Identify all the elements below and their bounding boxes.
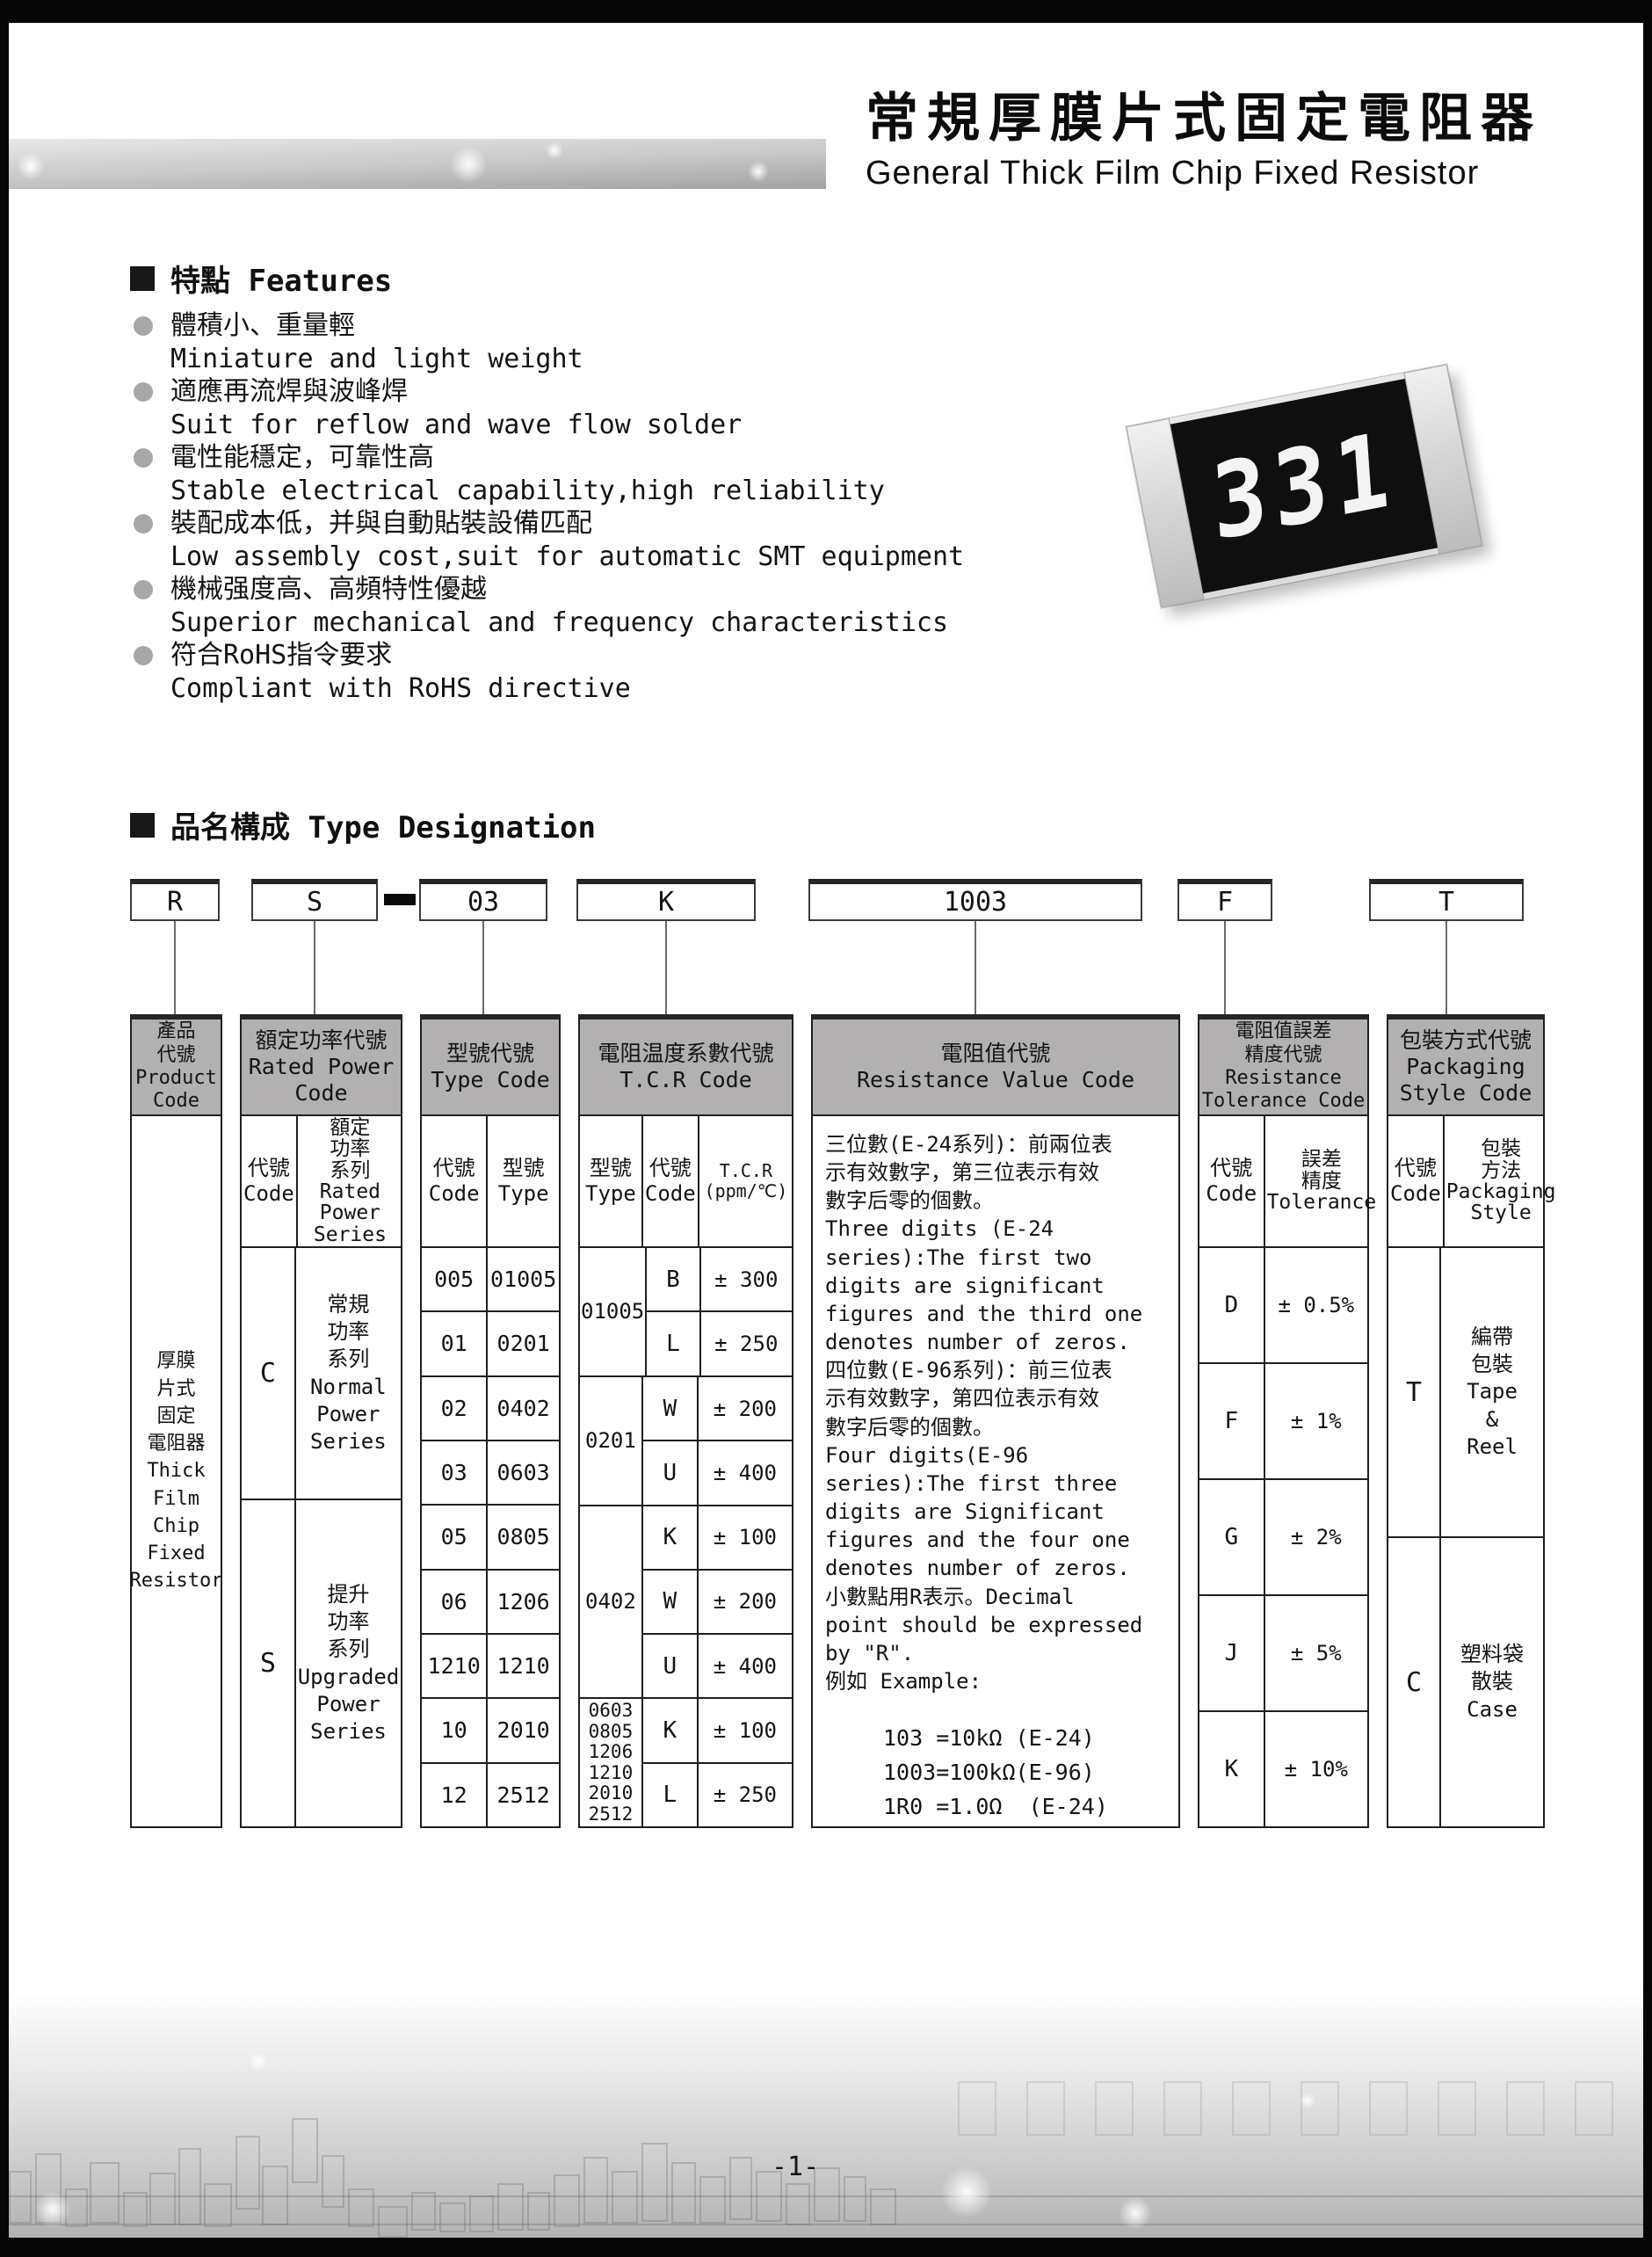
table-row: 03 0603	[422, 1441, 559, 1506]
left-black-border	[0, 0, 9, 2257]
footer-decoration	[1163, 2081, 1202, 2136]
code-box-power: S	[251, 879, 378, 921]
bullet-icon	[134, 316, 153, 336]
section-square-icon	[130, 813, 155, 838]
tcr-code-cell: L	[643, 1764, 697, 1826]
column-tcr-code: 電阻温度系數代號 T.C.R Code 型號 Type 代號 Code T.C.…	[578, 1014, 793, 1828]
designation-section-heading: 品名構成 Type Designation	[130, 803, 596, 846]
type-size-cell: 0402	[486, 1377, 559, 1440]
page-title-english: General Thick Film Chip Fixed Resistor	[866, 155, 1479, 192]
type-code-cell: 10	[422, 1699, 486, 1761]
feature-text-zh: 電性能穩定，可靠性高	[170, 441, 434, 475]
bullet-icon	[134, 382, 153, 402]
tcr-code-cell: W	[643, 1571, 697, 1633]
column-header: 包裝方式代號 Packaging Style Code	[1387, 1014, 1545, 1116]
tcr-group: 01005 B ± 300 L ± 250	[580, 1248, 792, 1377]
footer-decoration	[612, 2171, 638, 2224]
power-series-cell: 常規 功率 系列 Normal Power Series	[294, 1248, 401, 1499]
tcr-type-cell: 0402	[580, 1506, 641, 1697]
footer-decoration	[322, 2155, 344, 2208]
subheader-series: 額定 功率 系列 Rated Power Series	[296, 1116, 402, 1246]
table-row: L ± 250	[643, 1764, 792, 1826]
features-section-heading: 特點 Features	[130, 257, 392, 300]
tcr-code-cell: K	[643, 1506, 697, 1569]
feature-item: 體積小、重量輕 Miniature and light weight	[134, 309, 964, 375]
table-row: 01 0201	[422, 1312, 559, 1376]
tolerance-code-cell: F	[1199, 1364, 1264, 1478]
feature-text-en: Compliant with RoHS directive	[170, 672, 964, 705]
packaging-code-cell: C	[1388, 1538, 1439, 1826]
feature-text-en: Suit for reflow and wave flow solder	[170, 409, 964, 441]
power-code-cell: S	[242, 1500, 294, 1826]
type-size-cell: 0805	[486, 1506, 559, 1568]
table-row: 06 1206	[422, 1571, 559, 1635]
footer-decoration	[411, 2192, 436, 2231]
feature-text-zh: 體積小、重量輕	[170, 309, 355, 343]
footer-decoration	[554, 2174, 580, 2227]
bullet-icon	[134, 646, 153, 665]
tcr-value-cell: ± 400	[697, 1635, 792, 1697]
bullet-icon	[134, 448, 153, 468]
designation-heading-label: 品名構成 Type Designation	[170, 803, 596, 846]
tcr-code-cell: W	[643, 1377, 697, 1440]
type-code-cell: 06	[422, 1571, 486, 1633]
footer-decoration	[149, 2173, 176, 2225]
code-box-packaging: T	[1369, 879, 1524, 921]
product-description-cell: 厚膜 片式 固定 電阻器 Thick Film Chip Fixed Resis…	[130, 1116, 222, 1828]
footer-decoration	[348, 2188, 374, 2227]
type-size-cell: 2010	[486, 1699, 559, 1761]
tolerance-value-cell: ± 0.5%	[1264, 1248, 1367, 1362]
column-header: 額定功率代號 Rated Power Code	[240, 1014, 402, 1116]
packaging-style-cell: 塑料袋 散裝 Case	[1439, 1538, 1543, 1826]
tolerance-value-cell: ± 1%	[1264, 1364, 1367, 1478]
subheader-code: 代號 Code	[1199, 1116, 1264, 1246]
type-code-cell: 12	[422, 1764, 486, 1826]
footer-decoration	[583, 2157, 608, 2224]
table-row: K ± 10%	[1199, 1712, 1367, 1826]
footer-decoration	[844, 2176, 866, 2222]
type-size-cell: 1206	[486, 1571, 559, 1633]
type-size-cell: 0603	[486, 1441, 559, 1504]
tcr-value-cell: ± 200	[697, 1377, 792, 1440]
footer-decoration	[699, 2176, 726, 2224]
packaging-code-cell: T	[1388, 1248, 1439, 1536]
tcr-code-cell: U	[643, 1441, 697, 1504]
table-row: J ± 5%	[1199, 1596, 1367, 1712]
tcr-type-cell: 0603 0805 1206 1210 2010 2512	[580, 1699, 641, 1826]
page-title-chinese: 常規厚膜片式固定電阻器	[866, 76, 1542, 152]
feature-item: 符合RoHS指令要求 Compliant with RoHS directive	[134, 639, 964, 705]
connector-line	[1445, 921, 1447, 1014]
table-row: L ± 250	[647, 1312, 792, 1375]
code-box-tcr: K	[576, 879, 756, 921]
footer-decoration	[671, 2162, 696, 2224]
features-heading-label: 特點 Features	[170, 257, 392, 300]
footer-decoration	[469, 2195, 494, 2232]
table-row: C 塑料袋 散裝 Case	[1388, 1538, 1543, 1826]
connector-line	[665, 921, 667, 1014]
resistance-value-description: 三位數(E-24系列)：前兩位表 示有效數字，第三位表示有效 數字后零的個數。 …	[825, 1130, 1170, 1695]
type-code-cell: 03	[422, 1441, 486, 1504]
footer-decoration	[262, 2166, 288, 2225]
type-code-cell: 02	[422, 1377, 486, 1440]
footer-decoration	[1232, 2081, 1271, 2136]
tcr-code-cell: K	[643, 1699, 697, 1761]
tcr-value-cell: ± 400	[697, 1441, 792, 1504]
table-row: W ± 200	[643, 1377, 792, 1441]
tcr-code-cell: U	[643, 1635, 697, 1697]
tcr-group: 0201 W ± 200 U ± 400	[580, 1377, 792, 1506]
subheader-tcr: T.C.R (ppm/℃)	[698, 1116, 793, 1246]
sparkle-decoration	[1118, 2195, 1153, 2231]
subheader-row: 型號 Type 代號 Code T.C.R (ppm/℃)	[580, 1116, 792, 1248]
footer-decoration	[958, 2081, 996, 2136]
table-row: D ± 0.5%	[1199, 1248, 1367, 1364]
footer-decoration	[641, 2143, 668, 2222]
feature-text-en: Stable electrical capability,high reliab…	[170, 475, 964, 507]
footer-line	[9, 2224, 1643, 2225]
table-row: S 提升 功率 系列 Upgraded Power Series	[242, 1500, 401, 1826]
footer-decoration	[292, 2118, 318, 2183]
footer-decoration	[786, 2183, 810, 2225]
table-row: 05 0805	[422, 1506, 559, 1570]
footer-decoration	[1506, 2081, 1545, 2136]
table-row: F ± 1%	[1199, 1364, 1367, 1480]
type-size-cell: 2512	[486, 1764, 559, 1826]
column-header: 型號代號 Type Code	[420, 1014, 561, 1116]
type-code-cell: 01	[422, 1312, 486, 1375]
feature-text-en: Miniature and light weight	[170, 343, 964, 375]
subheader-row: 代號 Code 誤差 精度 Tolerance	[1199, 1116, 1367, 1248]
column-resistance-value: 電阻值代號 Resistance Value Code 三位數(E-24系列)：…	[811, 1014, 1180, 1828]
table-row: U ± 400	[643, 1635, 792, 1697]
table-row: U ± 400	[643, 1441, 792, 1504]
code-separator-dash	[384, 894, 416, 905]
code-box-product: R	[130, 879, 220, 921]
connector-line	[1224, 921, 1226, 1014]
table-row: B ± 300	[647, 1248, 792, 1312]
table-row: 12 2512	[422, 1764, 559, 1826]
tcr-value-cell: ± 100	[697, 1699, 792, 1761]
tcr-value-cell: ± 100	[697, 1506, 792, 1569]
resistance-value-examples: 103 =10kΩ (E-24) 1003=100kΩ(E-96) 1R0 =1…	[883, 1722, 1170, 1824]
bullet-icon	[134, 580, 153, 599]
page-number: -1-	[772, 2152, 819, 2182]
column-rated-power: 額定功率代號 Rated Power Code 代號 Code 額定 功率 系列…	[240, 1014, 402, 1828]
feature-item: 適應再流焊與波峰焊 Suit for reflow and wave flow …	[134, 375, 964, 441]
top-black-bar	[0, 0, 1652, 23]
footer-decoration	[439, 2203, 466, 2232]
feature-text-zh: 適應再流焊與波峰焊	[170, 375, 408, 409]
footer-decoration	[235, 2136, 260, 2210]
sparkle-decoration	[545, 141, 564, 160]
sparkle-decoration	[747, 160, 770, 183]
type-size-cell: 0201	[486, 1312, 559, 1375]
tolerance-value-cell: ± 5%	[1264, 1596, 1367, 1710]
tcr-code-cell: B	[647, 1248, 699, 1310]
tcr-code-cell: L	[647, 1312, 699, 1375]
feature-item: 機械强度高、高頻特性優越 Superior mechanical and fre…	[134, 573, 964, 639]
page-footer: -1-	[9, 1988, 1643, 2238]
table-row: T 編帶 包裝 Tape & Reel	[1388, 1248, 1543, 1538]
tcr-type-cell: 0201	[580, 1377, 641, 1505]
footer-decoration	[1369, 2081, 1408, 2136]
table-row: G ± 2%	[1199, 1480, 1367, 1596]
table-row: 02 0402	[422, 1377, 559, 1441]
footer-decoration	[527, 2192, 550, 2231]
tolerance-value-cell: ± 2%	[1264, 1480, 1367, 1594]
code-box-type: 03	[419, 879, 547, 921]
tcr-value-cell: ± 200	[697, 1571, 792, 1633]
column-header: 電阻温度系數代號 T.C.R Code	[578, 1014, 793, 1116]
column-packaging: 包裝方式代號 Packaging Style Code 代號 Code 包裝 方…	[1387, 1014, 1545, 1828]
sparkle-decoration	[33, 2190, 72, 2229]
bullet-icon	[134, 514, 153, 533]
subheader-code: 代號 Code	[242, 1116, 296, 1246]
tcr-value-cell: ± 250	[697, 1764, 792, 1826]
connector-line	[482, 921, 484, 1014]
footer-decoration	[378, 2206, 408, 2238]
footer-decoration	[123, 2192, 148, 2227]
table-row: K ± 100	[643, 1506, 792, 1571]
example-line: 103 =10kΩ (E-24)	[883, 1722, 1170, 1756]
bottom-black-bar	[0, 2238, 1652, 2257]
subheader-type: 型號 Type	[486, 1116, 559, 1246]
header-gray-band	[9, 139, 826, 189]
feature-text-en: Superior mechanical and frequency charac…	[170, 606, 964, 639]
footer-decoration	[870, 2188, 896, 2225]
subheader-code: 代號 Code	[1388, 1116, 1443, 1246]
connector-line	[975, 921, 976, 1014]
code-box-value: 1003	[808, 879, 1142, 921]
power-series-cell: 提升 功率 系列 Upgraded Power Series	[294, 1500, 402, 1826]
tolerance-code-cell: J	[1199, 1596, 1264, 1710]
subheader-tolerance: 誤差 精度 Tolerance	[1264, 1116, 1379, 1246]
table-row: 1210 1210	[422, 1635, 559, 1699]
example-line: 1R0 =1.0Ω (E-24)	[883, 1790, 1170, 1825]
footer-decoration	[90, 2162, 120, 2224]
section-square-icon	[130, 266, 155, 291]
footer-decoration	[9, 2171, 32, 2224]
right-black-border	[1643, 0, 1652, 2257]
tolerance-code-cell: D	[1199, 1248, 1264, 1362]
code-box-tolerance: F	[1177, 879, 1272, 921]
table-row: 10 2010	[422, 1699, 559, 1763]
type-size-cell: 01005	[486, 1248, 559, 1310]
tolerance-value-cell: ± 10%	[1264, 1712, 1367, 1826]
tcr-value-cell: ± 300	[699, 1248, 792, 1310]
type-code-cell: 05	[422, 1506, 486, 1568]
column-type-code: 型號代號 Type Code 代號 Code 型號 Type 005 01005…	[420, 1014, 561, 1828]
table-row: 005 01005	[422, 1248, 559, 1312]
table-row: K ± 100	[643, 1699, 792, 1763]
feature-item: 裝配成本低，并與自動貼裝設備匹配 Low assembly cost,suit …	[134, 507, 964, 573]
datasheet-page: 常規厚膜片式固定電阻器 General Thick Film Chip Fixe…	[0, 0, 1652, 2257]
footer-decoration	[1026, 2081, 1065, 2136]
subheader-row: 代號 Code 包裝 方法 Packaging Style	[1388, 1116, 1543, 1248]
column-header: 電阻值誤差 精度代號 Resistance Tolerance Code	[1198, 1014, 1369, 1116]
packaging-style-cell: 編帶 包裝 Tape & Reel	[1439, 1248, 1543, 1536]
resistor-chip-photo: 331	[1126, 364, 1482, 607]
subheader-row: 代號 Code 額定 功率 系列 Rated Power Series	[242, 1116, 401, 1248]
feature-item: 電性能穩定，可靠性高 Stable electrical capability,…	[134, 441, 964, 507]
sparkle-decoration	[448, 144, 489, 185]
footer-decoration	[729, 2157, 752, 2220]
subheader-code: 代號 Code	[422, 1116, 486, 1246]
type-code-cell: 1210	[422, 1635, 486, 1697]
subheader-style: 包裝 方法 Packaging Style	[1443, 1116, 1558, 1246]
power-code-cell: C	[242, 1248, 294, 1499]
table-row: C 常規 功率 系列 Normal Power Series	[242, 1248, 401, 1500]
chip-body: 331	[1169, 373, 1438, 599]
feature-text-zh: 裝配成本低，并與自動貼裝設備匹配	[170, 507, 592, 541]
feature-text-zh: 機械强度高、高頻特性優越	[170, 573, 487, 606]
column-product-code: 產品 代號 Product Code 厚膜 片式 固定 電阻器 Thick Fi…	[130, 1014, 222, 1828]
feature-text-en: Low assembly cost,suit for automatic SMT…	[170, 541, 964, 573]
subheader-code: 代號 Code	[641, 1116, 698, 1246]
footer-decoration	[178, 2148, 201, 2225]
footer-decoration	[1575, 2081, 1613, 2136]
tcr-type-cell: 01005	[580, 1248, 645, 1375]
type-code-cell: 005	[422, 1248, 486, 1310]
column-header: 電阻值代號 Resistance Value Code	[811, 1014, 1180, 1116]
footer-decoration	[204, 2183, 232, 2227]
type-size-cell: 1210	[486, 1635, 559, 1697]
chip-marking: 331	[1208, 408, 1400, 564]
subheader-type: 型號 Type	[580, 1116, 641, 1246]
column-header: 產品 代號 Product Code	[130, 1014, 222, 1116]
connector-line	[314, 921, 315, 1014]
sparkle-decoration	[16, 151, 46, 181]
tcr-group: 0603 0805 1206 1210 2010 2512 K ± 100 L …	[580, 1699, 792, 1826]
footer-decoration	[1095, 2081, 1134, 2136]
example-line: 1003=100kΩ(E-96)	[883, 1756, 1170, 1790]
table-row: W ± 200	[643, 1571, 792, 1635]
feature-text-zh: 符合RoHS指令要求	[170, 639, 392, 672]
sparkle-decoration	[248, 2051, 269, 2072]
footer-decoration	[497, 2183, 524, 2231]
tolerance-code-cell: G	[1199, 1480, 1264, 1594]
connector-line	[174, 921, 176, 1014]
tcr-value-cell: ± 250	[699, 1312, 792, 1375]
sparkle-decoration	[938, 2164, 995, 2220]
footer-decoration	[1438, 2081, 1476, 2136]
column-tolerance: 電阻值誤差 精度代號 Resistance Tolerance Code 代號 …	[1198, 1014, 1369, 1828]
sparkle-decoration	[1299, 2092, 1316, 2109]
tolerance-code-cell: K	[1199, 1712, 1264, 1826]
subheader-row: 代號 Code 型號 Type	[422, 1116, 559, 1248]
features-list: 體積小、重量輕 Miniature and light weight 適應再流焊…	[134, 309, 964, 705]
tcr-group: 0402 K ± 100 W ± 200 U ± 400	[580, 1506, 792, 1699]
